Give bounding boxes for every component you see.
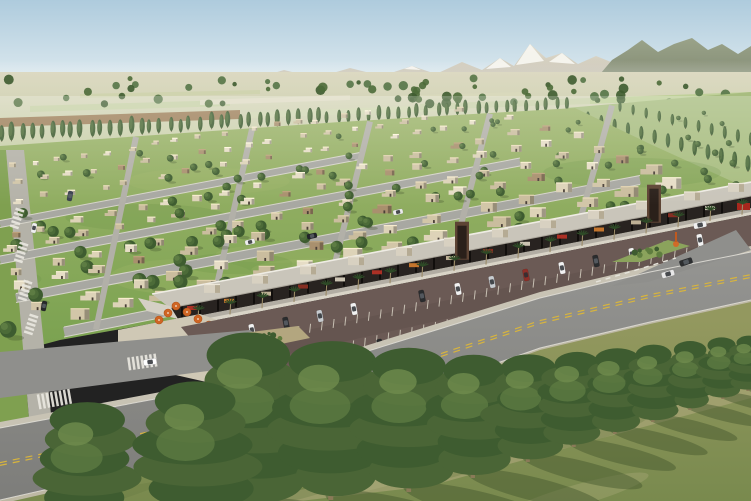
house: [11, 268, 22, 275]
storefront-sign: [335, 277, 345, 281]
house: [530, 207, 546, 217]
entry-portal: [455, 222, 469, 260]
storefront-sign: [372, 270, 382, 274]
house: [303, 207, 313, 214]
house: [134, 279, 148, 288]
rooftop-unit: [204, 284, 220, 293]
storefront-sign: [298, 285, 308, 289]
house: [37, 226, 45, 231]
house: [302, 222, 314, 230]
rooftop-unit: [540, 219, 556, 228]
rooftop-unit: [300, 265, 316, 274]
house: [147, 217, 155, 223]
house: [125, 244, 137, 252]
house: [257, 251, 274, 261]
storefront-sign: [557, 235, 567, 239]
aerial-render-canvas: [0, 0, 751, 501]
house: [214, 261, 228, 270]
rooftop-unit: [588, 210, 604, 219]
house: [12, 232, 20, 238]
house: [133, 256, 144, 263]
atmospheric-haze: [0, 96, 751, 206]
house: [271, 212, 282, 219]
house: [384, 225, 397, 233]
scene-svg: [0, 0, 751, 501]
tree: [0, 321, 17, 338]
rooftop-unit: [396, 247, 412, 256]
cafe-umbrella: [164, 309, 172, 317]
house: [310, 241, 324, 250]
storefront-sign: [594, 228, 604, 232]
storefront-sign: [631, 220, 641, 224]
cafe-umbrella: [172, 302, 180, 310]
cafe-umbrella: [183, 308, 191, 316]
house: [53, 258, 65, 266]
cafe-umbrella: [155, 316, 163, 324]
house: [115, 223, 124, 229]
cafe-umbrella: [194, 315, 202, 323]
rooftop-unit: [348, 256, 364, 265]
house: [71, 308, 90, 319]
rooftop-unit: [492, 228, 508, 237]
rooftop-unit: [252, 275, 268, 284]
